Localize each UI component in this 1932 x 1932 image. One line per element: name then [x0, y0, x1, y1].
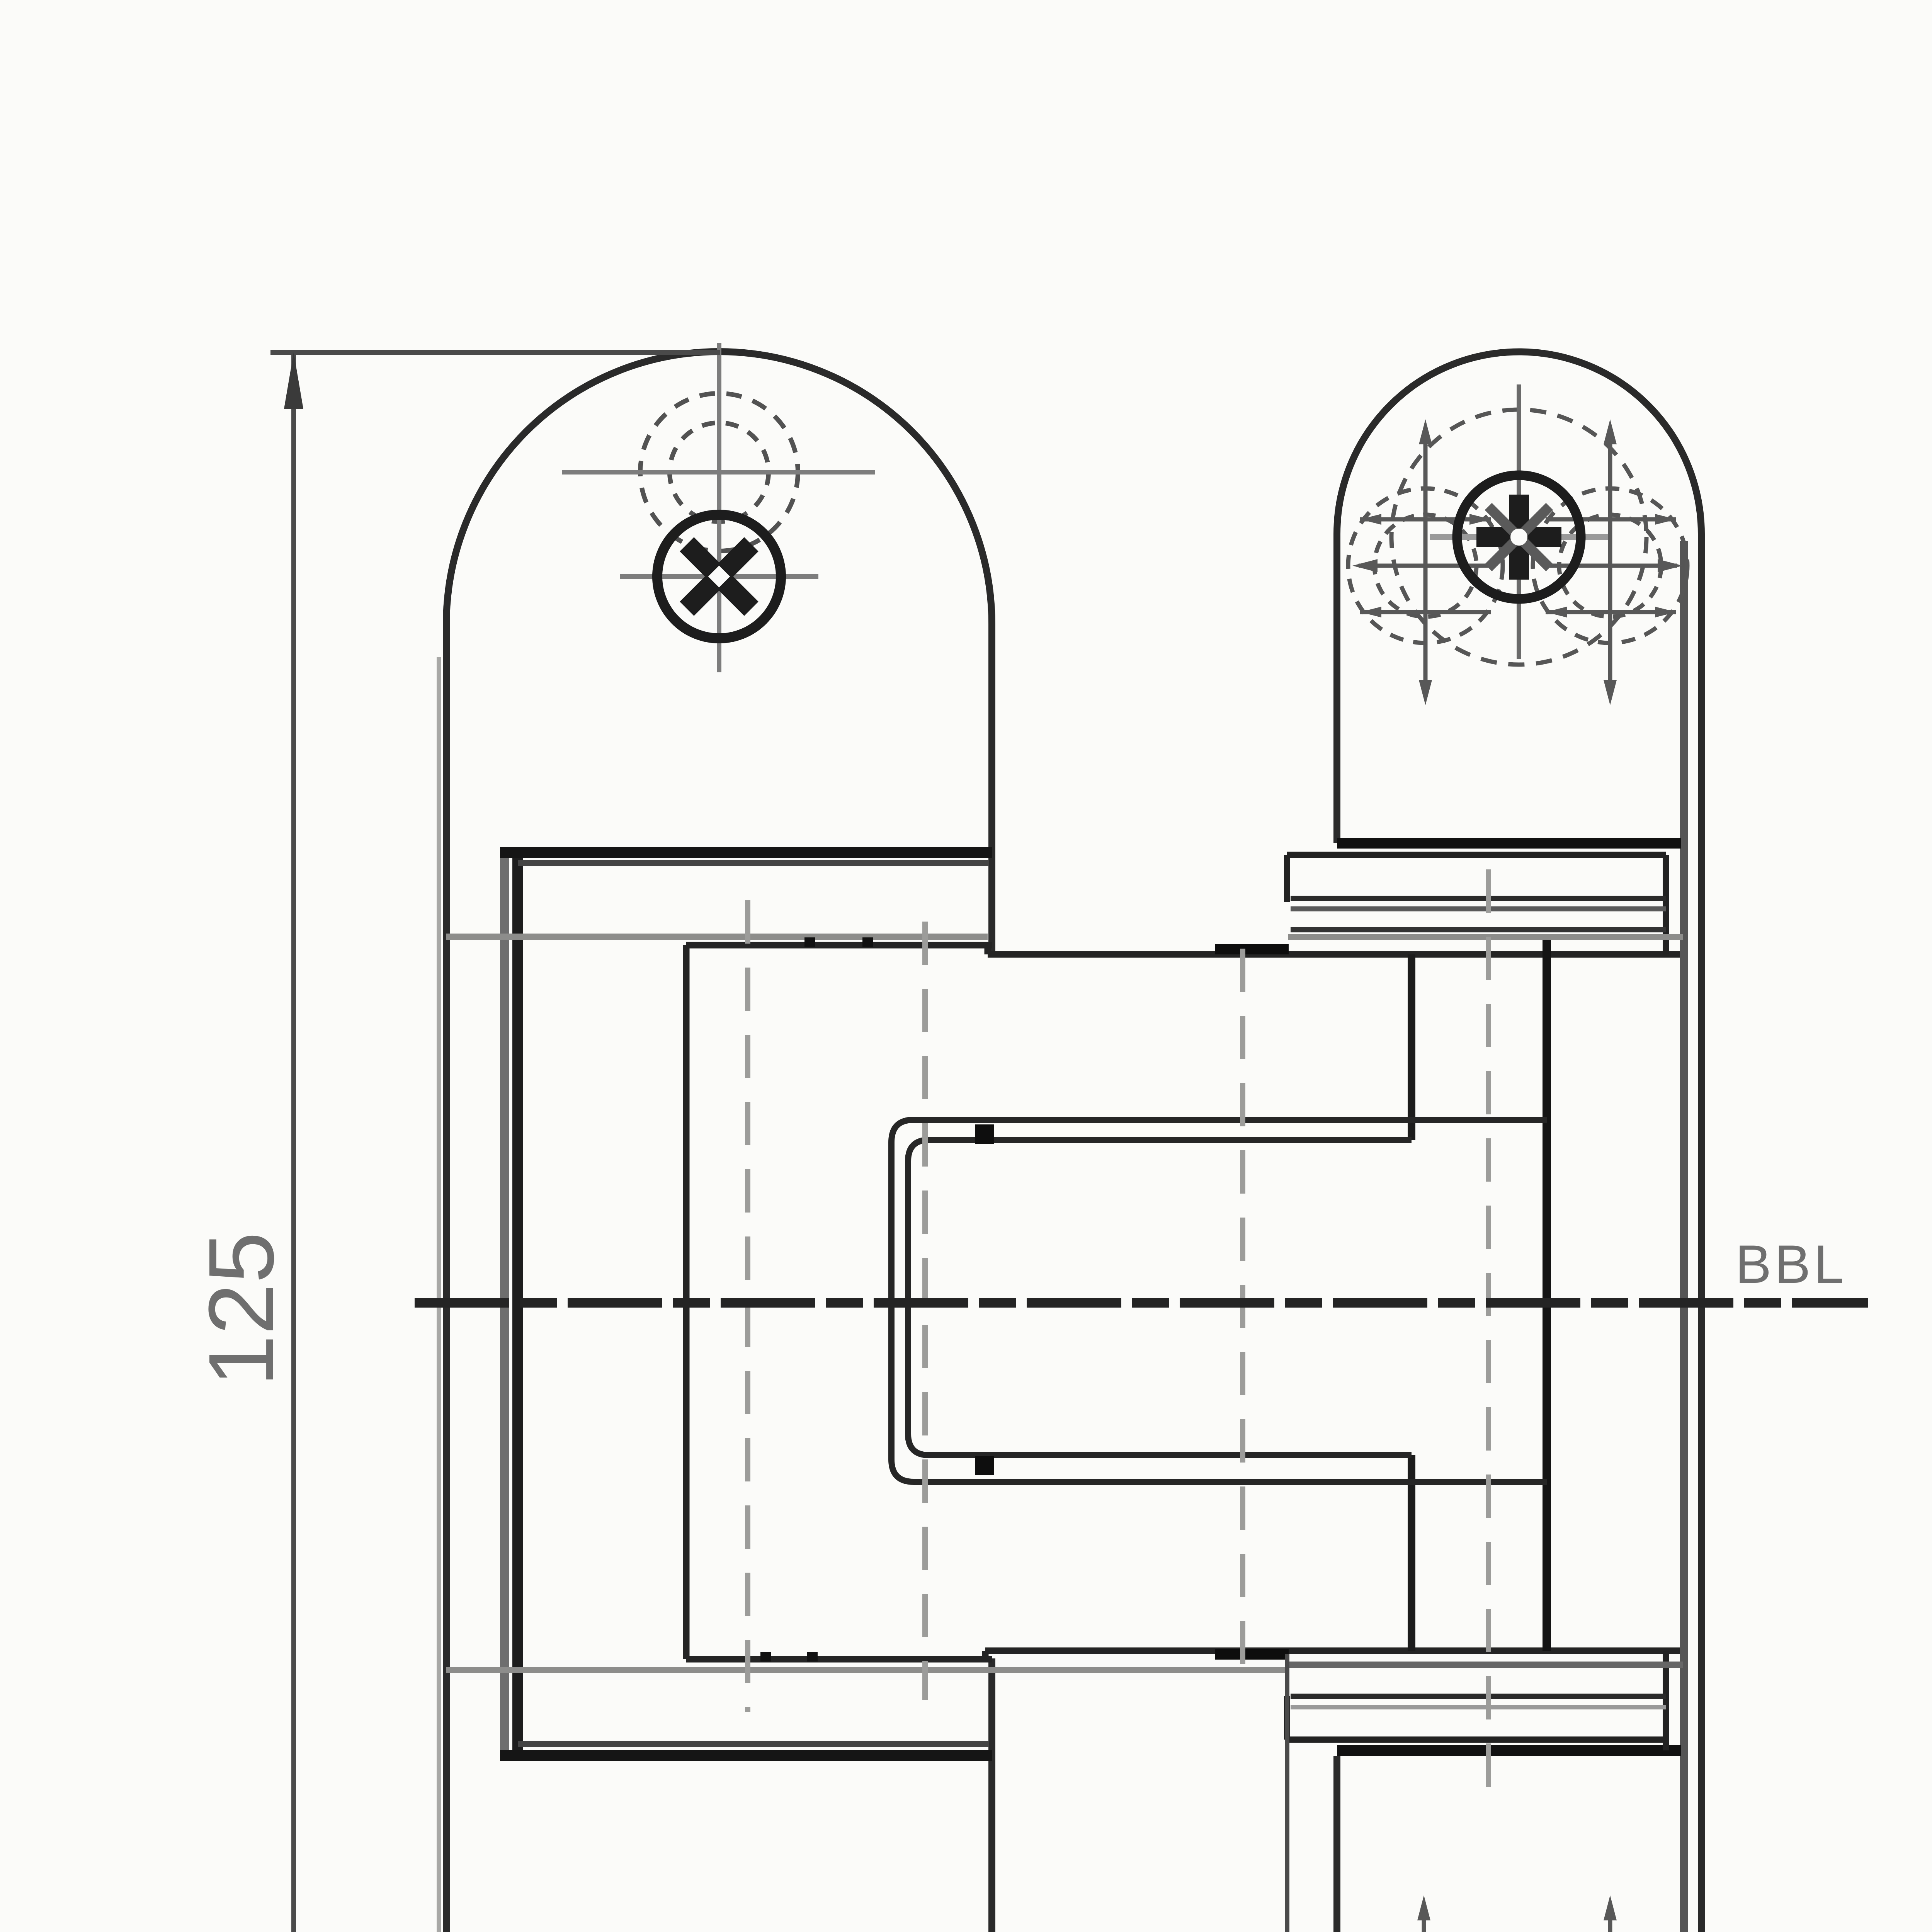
svg-text:125: 125 — [189, 1232, 293, 1386]
svg-text:20: 20 — [1097, 1923, 1200, 1932]
svg-text:BBL: BBL — [1735, 1234, 1847, 1294]
